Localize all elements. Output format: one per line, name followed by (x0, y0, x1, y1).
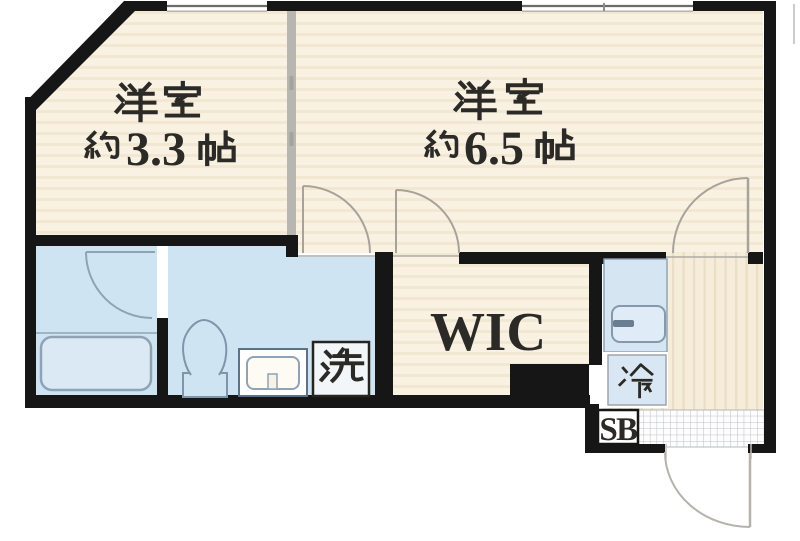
svg-text:3.3: 3.3 (126, 123, 186, 176)
svg-text:WIC: WIC (430, 301, 546, 362)
svg-text:6.5: 6.5 (464, 122, 524, 175)
svg-text:SB: SB (599, 412, 638, 448)
